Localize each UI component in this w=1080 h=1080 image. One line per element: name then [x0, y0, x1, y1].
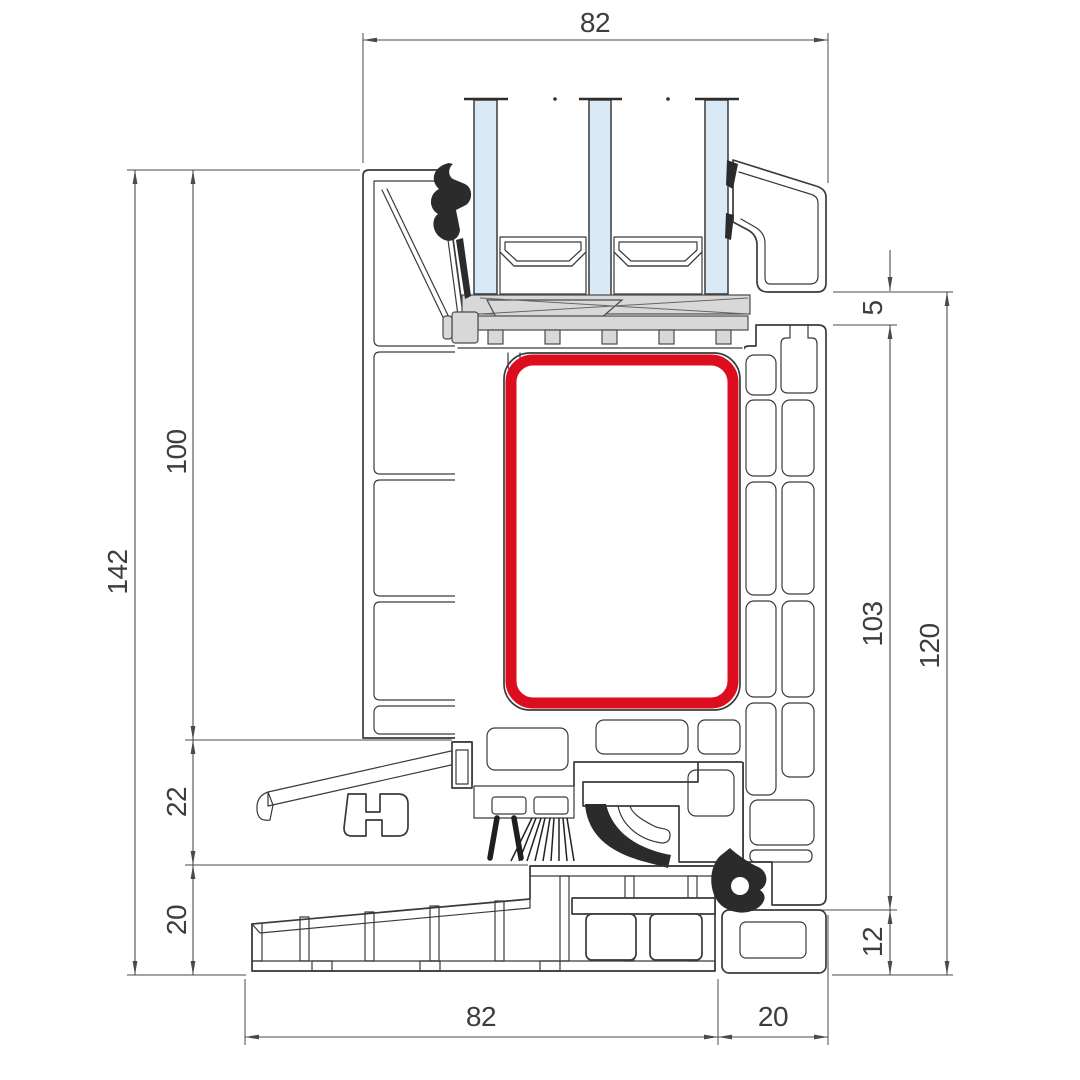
dim-label-left-lower: 20 [161, 905, 192, 935]
dim-label-top-width: 82 [580, 7, 610, 38]
break-dot [666, 97, 670, 101]
dim-label-left-total: 142 [102, 549, 133, 594]
dim-label-right-total: 120 [914, 623, 945, 668]
glazing-support-bridge [443, 295, 750, 344]
fixing-clip [344, 794, 408, 836]
dim-label-bottom-sill: 82 [466, 1001, 496, 1032]
sealant-hatch [500, 252, 586, 294]
gasket-hollow [731, 877, 749, 895]
comb-leg [488, 330, 503, 344]
break-dot [553, 97, 557, 101]
glass-pane-outer [474, 100, 497, 294]
dim-label-left-upper: 100 [161, 429, 192, 474]
glazing-gasket-inner [725, 213, 734, 240]
comb-leg [716, 330, 731, 344]
spacer-bar [614, 237, 702, 294]
dim-label-right-inset: 12 [857, 927, 888, 957]
comb-leg [545, 330, 560, 344]
window-profile-cross-section: 82 142 100 22 20 5 103 120 12 82 20 [0, 0, 1080, 1080]
triple-glazing [464, 97, 739, 297]
glazing-gasket-outer [431, 163, 471, 241]
seal-leg [490, 818, 497, 858]
glass-pane-middle [589, 100, 611, 297]
glazing-bead [733, 160, 826, 292]
dim-label-bottom-right: 20 [758, 1001, 788, 1032]
dim-label-left-middle: 22 [161, 787, 192, 817]
glass-pane-inner [705, 100, 728, 294]
spacer-bar [500, 237, 586, 294]
drip-rail [257, 742, 472, 836]
center-gasket [585, 804, 671, 868]
cad-drawing: 82 142 100 22 20 5 103 120 12 82 20 [0, 0, 1080, 1080]
brush-rail [474, 786, 574, 818]
dim-label-right-frame: 103 [857, 601, 888, 646]
frame-profile [743, 325, 826, 905]
comb-leg [602, 330, 617, 344]
subsill-block [722, 910, 826, 973]
aluminum-window-sill [252, 866, 715, 971]
support-comb-bar [478, 316, 748, 330]
comb-leg [659, 330, 674, 344]
dim-label-right-gap: 5 [857, 300, 888, 315]
